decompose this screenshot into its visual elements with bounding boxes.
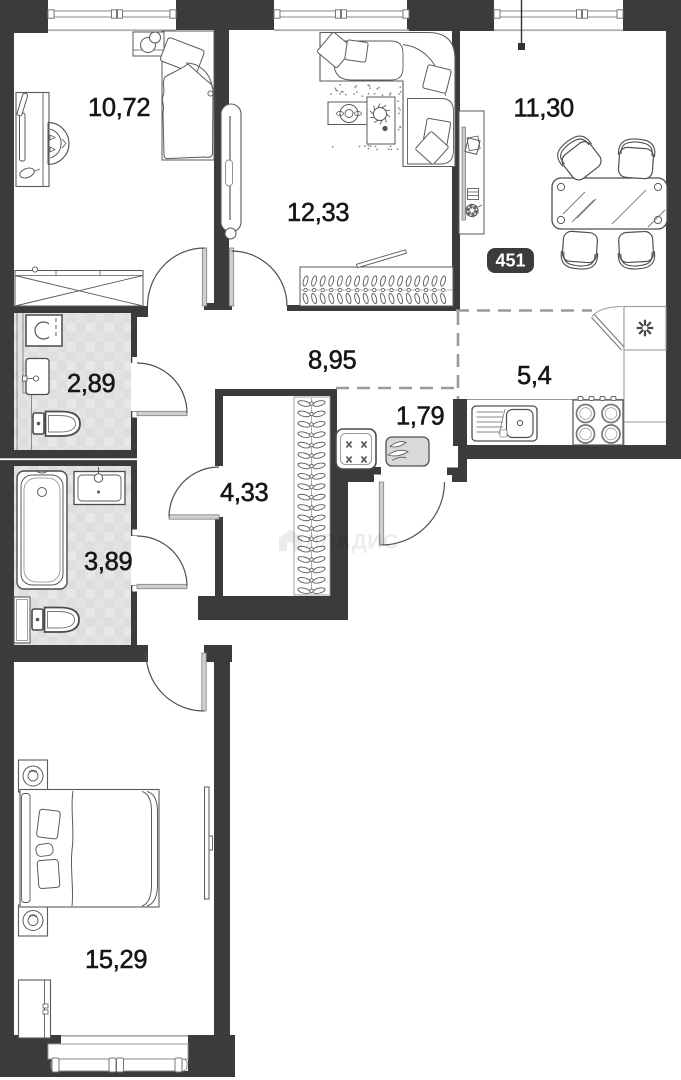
svg-text:12,33: 12,33	[287, 199, 349, 227]
svg-text:11,30: 11,30	[514, 95, 575, 123]
svg-text:15,29: 15,29	[85, 946, 147, 974]
svg-text:ЛЛАДИС: ЛЛАДИС	[305, 531, 399, 554]
svg-text:10,72: 10,72	[88, 94, 150, 122]
svg-text:1,79: 1,79	[396, 403, 444, 431]
svg-text:8,95: 8,95	[308, 347, 357, 375]
svg-text:5,4: 5,4	[517, 362, 552, 390]
svg-text:2,89: 2,89	[67, 370, 115, 398]
svg-text:451: 451	[495, 251, 525, 271]
svg-text:3,89: 3,89	[84, 548, 132, 576]
svg-text:4,33: 4,33	[220, 479, 269, 507]
